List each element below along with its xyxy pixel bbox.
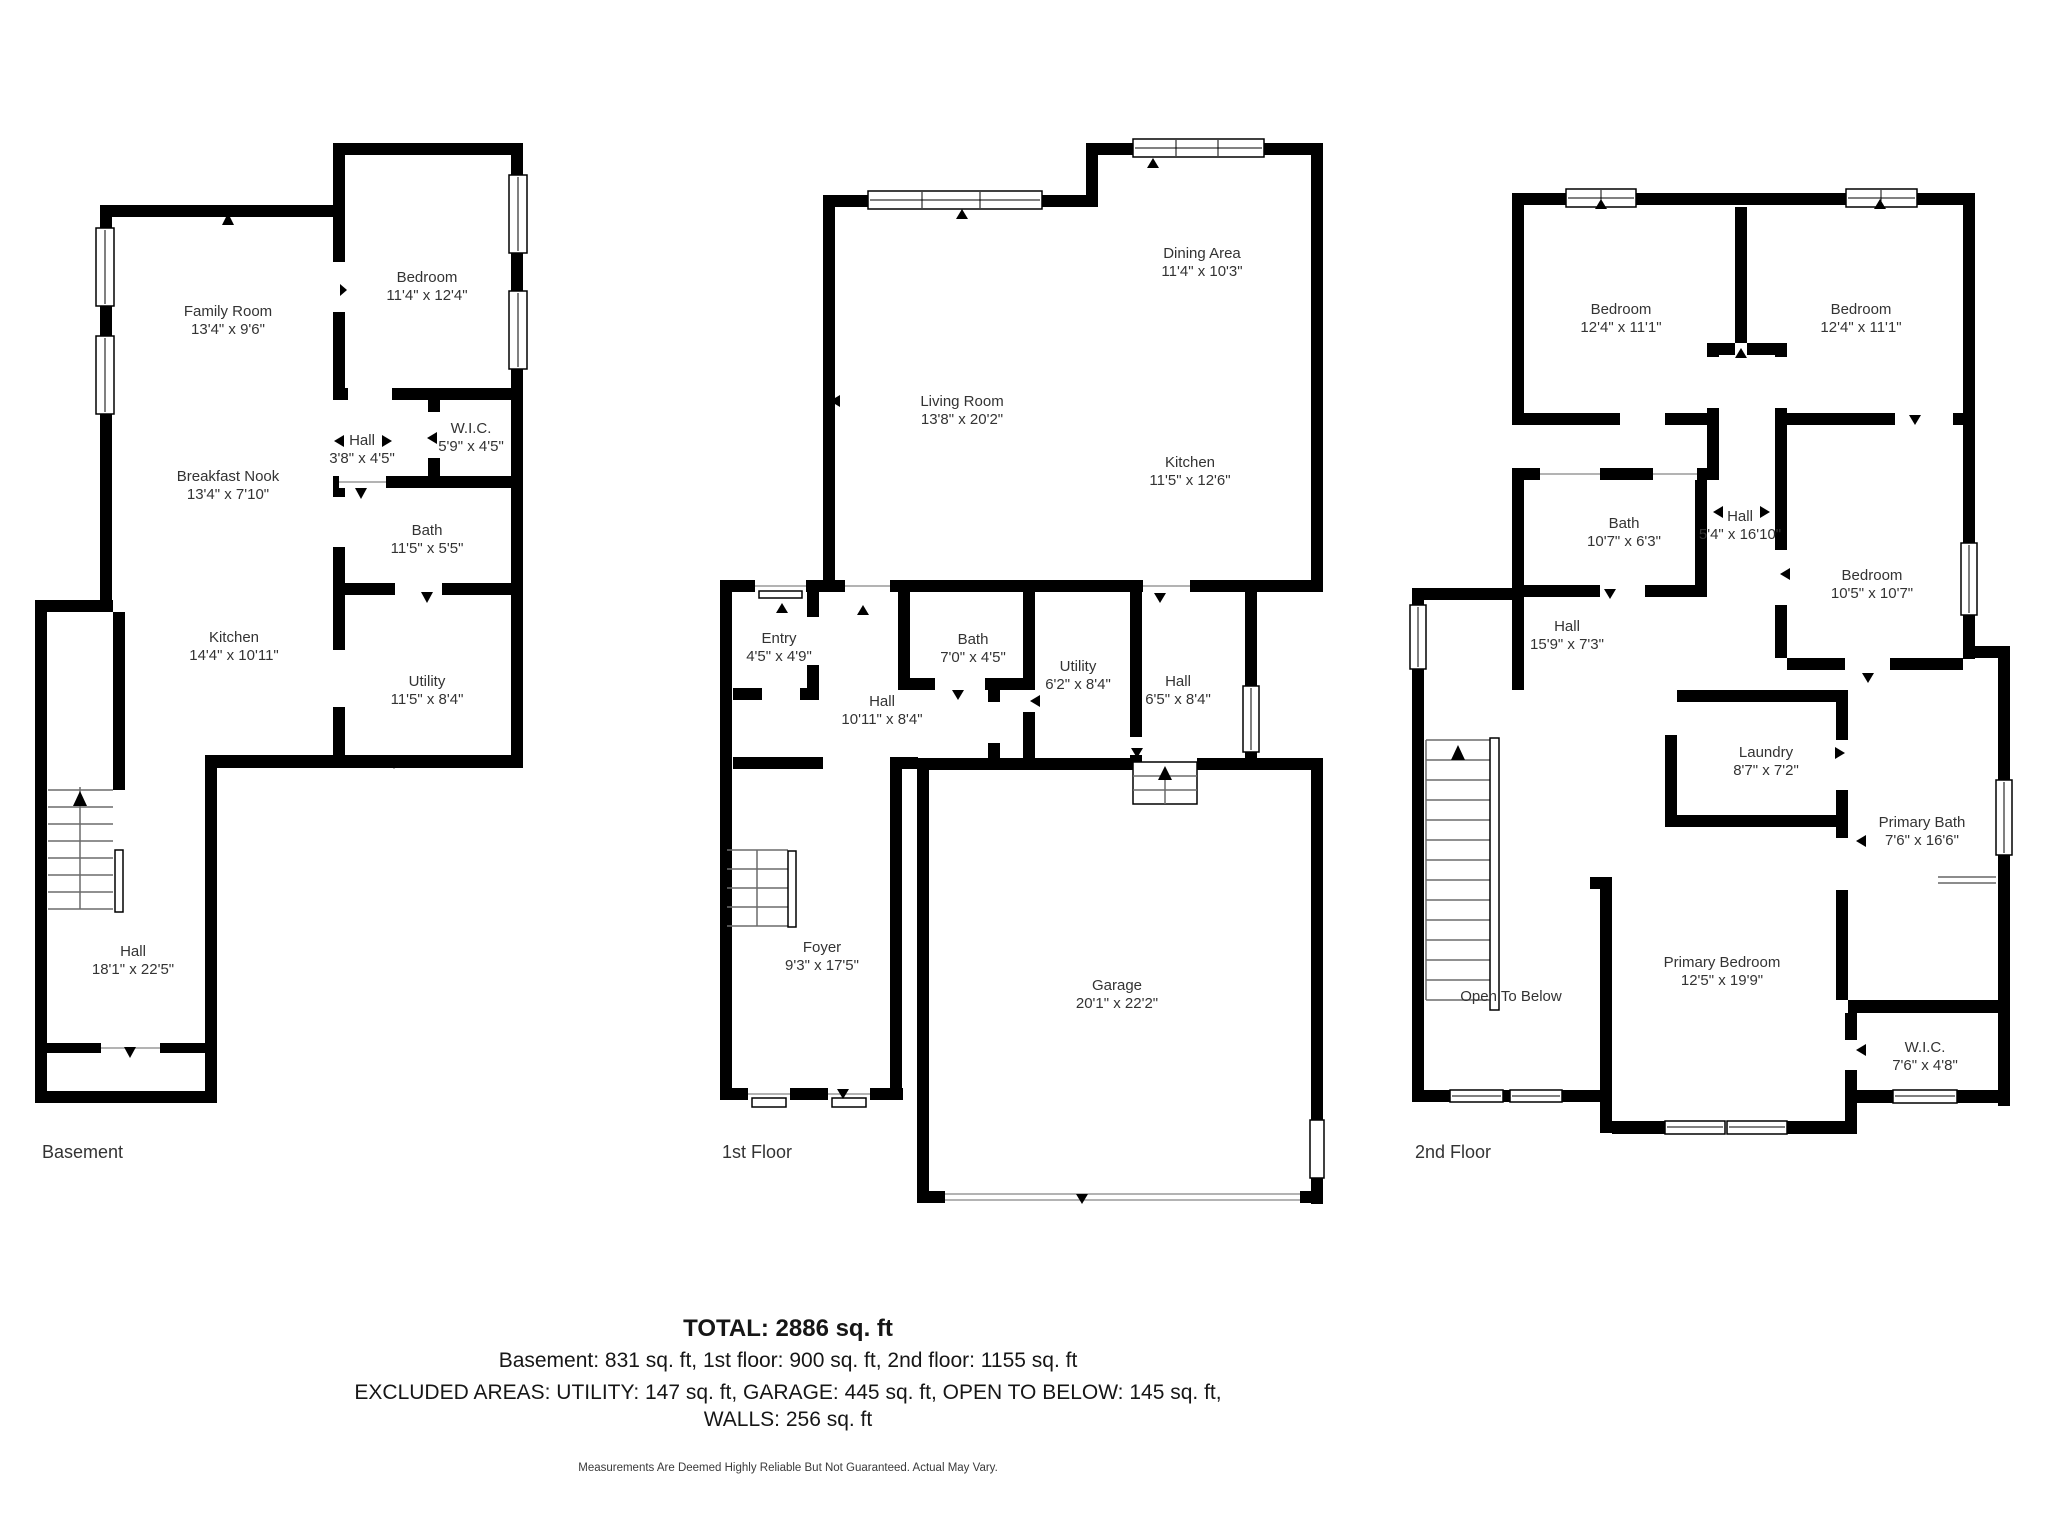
room-name: Laundry [1733, 744, 1799, 762]
room-dims: 7'0" x 4'5" [940, 649, 1006, 667]
room-name: Bath [1587, 515, 1661, 533]
room-dims: 12'5" x 19'9" [1664, 972, 1781, 990]
room-label-breakfast-nook: Breakfast Nook 13'4" x 7'10" [177, 468, 280, 504]
room-label-bedroom-2f-mid: Bedroom 10'5" x 10'7" [1831, 567, 1913, 603]
room-dims: 4'5" x 4'9" [746, 648, 812, 666]
room-name: Living Room [920, 393, 1003, 411]
room-name: Dining Area [1161, 245, 1242, 263]
room-dims: 5'9" x 4'5" [438, 438, 504, 456]
room-name: W.I.C. [438, 420, 504, 438]
room-label-basement-bedroom: Bedroom 11'4" x 12'4" [386, 269, 467, 305]
room-dims: 10'11" x 8'4" [841, 711, 922, 729]
room-dims: 10'7" x 6'3" [1587, 533, 1661, 551]
second-floor-door-openings [1540, 357, 1996, 883]
room-dims: 9'3" x 17'5" [785, 957, 859, 975]
summary-excluded-areas: EXCLUDED AREAS: UTILITY: 147 sq. ft, GAR… [288, 1381, 1288, 1405]
room-name: Kitchen [1149, 454, 1230, 472]
room-name: W.I.C. [1892, 1039, 1958, 1057]
room-label-hall-2f-corridor: Hall 5'4" x 16'10" [1699, 508, 1781, 544]
room-label-hall-1f-a: Hall 10'11" x 8'4" [841, 693, 922, 729]
room-label-primary-bath: Primary Bath 7'6" x 16'6" [1879, 814, 1966, 850]
room-label-primary-bedroom: Primary Bedroom 12'5" x 19'9" [1664, 954, 1781, 990]
floor-caption-1st-floor: 1st Floor [722, 1142, 792, 1163]
summary-floor-areas: Basement: 831 sq. ft, 1st floor: 900 sq.… [288, 1349, 1288, 1373]
room-name: Open To Below [1460, 988, 1561, 1006]
room-name: Hall [329, 432, 395, 450]
room-label-basement-hall: Hall 3'8" x 4'5" [329, 432, 395, 468]
room-name: Breakfast Nook [177, 468, 280, 486]
room-label-laundry: Laundry 8'7" x 7'2" [1733, 744, 1799, 780]
room-name: Family Room [184, 303, 272, 321]
room-name: Utility [1045, 658, 1111, 676]
room-dims: 6'5" x 8'4" [1145, 691, 1211, 709]
room-label-wic-2f: W.I.C. 7'6" x 4'8" [1892, 1039, 1958, 1075]
room-label-kitchen-1f: Kitchen 11'5" x 12'6" [1149, 454, 1230, 490]
room-label-garage: Garage 20'1" x 22'2" [1076, 977, 1158, 1013]
room-name: Primary Bedroom [1664, 954, 1781, 972]
room-label-hall-1f-b: Hall 6'5" x 8'4" [1145, 673, 1211, 709]
room-dims: 20'1" x 22'2" [1076, 995, 1158, 1013]
room-dims: 11'4" x 10'3" [1161, 263, 1242, 281]
room-dims: 5'4" x 16'10" [1699, 526, 1781, 544]
room-dims: 18'1" x 22'5" [92, 961, 174, 979]
room-dims: 6'2" x 8'4" [1045, 676, 1111, 694]
room-dims: 10'5" x 10'7" [1831, 585, 1913, 603]
room-label-bath-2f: Bath 10'7" x 6'3" [1587, 515, 1661, 551]
room-dims: 11'5" x 12'6" [1149, 472, 1230, 490]
room-label-basement-kitchen: Kitchen 14'4" x 10'11" [189, 629, 279, 665]
room-name: Hall [1530, 618, 1604, 636]
summary-walls-area: WALLS: 256 sq. ft [288, 1408, 1288, 1432]
foyer-stairs [727, 850, 796, 927]
room-name: Bedroom [386, 269, 467, 287]
room-name: Utility [391, 673, 464, 691]
garage-entry-stairs [1133, 762, 1197, 804]
room-label-basement-wic: W.I.C. 5'9" x 4'5" [438, 420, 504, 456]
room-dims: 11'5" x 5'5" [391, 540, 464, 558]
room-name: Bedroom [1820, 301, 1901, 319]
room-name: Hall [92, 943, 174, 961]
floor-caption-basement: Basement [42, 1142, 123, 1163]
room-dims: 14'4" x 10'11" [189, 647, 279, 665]
floor-caption-2nd-floor: 2nd Floor [1415, 1142, 1491, 1163]
first-floor-walls [720, 143, 1323, 1204]
room-name: Entry [746, 630, 812, 648]
room-dims: 13'4" x 7'10" [177, 486, 280, 504]
room-label-utility-1f: Utility 6'2" x 8'4" [1045, 658, 1111, 694]
room-name: Garage [1076, 977, 1158, 995]
room-name: Bath [391, 522, 464, 540]
room-name: Hall [1145, 673, 1211, 691]
second-floor-stairs [1426, 738, 1499, 1010]
room-name: Hall [1699, 508, 1781, 526]
room-name: Kitchen [189, 629, 279, 647]
room-dims: 15'9" x 7'3" [1530, 636, 1604, 654]
room-name: Bedroom [1580, 301, 1661, 319]
room-label-entry: Entry 4'5" x 4'9" [746, 630, 812, 666]
room-dims: 7'6" x 4'8" [1892, 1057, 1958, 1075]
room-dims: 3'8" x 4'5" [329, 450, 395, 468]
first-floor-plan [720, 139, 1324, 1204]
room-dims: 7'6" x 16'6" [1879, 832, 1966, 850]
room-name: Bedroom [1831, 567, 1913, 585]
room-label-family-room: Family Room 13'4" x 9'6" [184, 303, 272, 339]
room-dims: 12'4" x 11'1" [1820, 319, 1901, 337]
room-dims: 11'4" x 12'4" [386, 287, 467, 305]
room-name: Bath [940, 631, 1006, 649]
room-name: Primary Bath [1879, 814, 1966, 832]
room-dims: 13'4" x 9'6" [184, 321, 272, 339]
summary-disclaimer: Measurements Are Deemed Highly Reliable … [288, 1462, 1288, 1474]
room-label-dining-area: Dining Area 11'4" x 10'3" [1161, 245, 1242, 281]
room-label-hall-2f: Hall 15'9" x 7'3" [1530, 618, 1604, 654]
room-label-open-to-below: Open To Below [1460, 988, 1561, 1006]
room-dims: 13'8" x 20'2" [920, 411, 1003, 429]
room-dims: 8'7" x 7'2" [1733, 762, 1799, 780]
room-label-bath-1f: Bath 7'0" x 4'5" [940, 631, 1006, 667]
room-name: Hall [841, 693, 922, 711]
basement-door-ar rows [124, 213, 437, 1058]
room-label-bedroom-2f-right: Bedroom 12'4" x 11'1" [1820, 301, 1901, 337]
room-label-basement-bath: Bath 11'5" x 5'5" [391, 522, 464, 558]
room-name: Foyer [785, 939, 859, 957]
room-dims: 12'4" x 11'1" [1580, 319, 1661, 337]
floorplan-page: Family Room 13'4" x 9'6" Bedroom 11'4" x… [0, 0, 2048, 1536]
basement-stairs [48, 787, 123, 912]
room-label-basement-hall-2: Hall 18'1" x 22'5" [92, 943, 174, 979]
room-label-basement-utility: Utility 11'5" x 8'4" [391, 673, 464, 709]
room-dims: 11'5" x 8'4" [391, 691, 464, 709]
summary-total: TOTAL: 2886 sq. ft [288, 1315, 1288, 1343]
room-label-foyer: Foyer 9'3" x 17'5" [785, 939, 859, 975]
room-label-bedroom-2f-left: Bedroom 12'4" x 11'1" [1580, 301, 1661, 337]
room-label-living-room: Living Room 13'8" x 20'2" [920, 393, 1003, 429]
